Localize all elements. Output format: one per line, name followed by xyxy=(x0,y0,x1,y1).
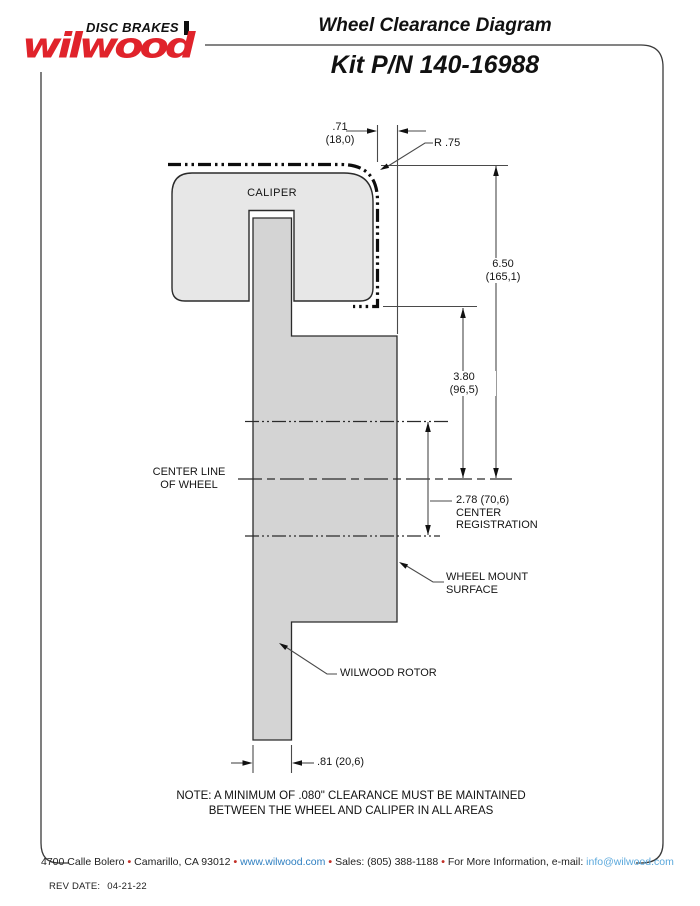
footer-address: 4700 Calle Bolero xyxy=(41,856,124,868)
dim-rotor-offset: .81 (20,6) xyxy=(317,756,364,769)
clearance-note: NOTE: A MINIMUM OF .080" CLEARANCE MUST … xyxy=(99,789,603,819)
caliper-label: CALIPER xyxy=(243,187,301,200)
clearance-note-line2: BETWEEN THE WHEEL AND CALIPER IN ALL ARE… xyxy=(209,805,494,817)
dim-overall-height-in: 6.50 xyxy=(492,258,513,270)
wilwood-logo: DISC BRAKES wilwood xyxy=(20,20,210,74)
wilwood-logo-script: wilwood xyxy=(22,29,191,63)
dim-mount-to-envelope-in: 3.80 xyxy=(453,371,474,383)
footer-separator: • xyxy=(230,856,240,868)
centerline-label-line1: CENTER LINE xyxy=(153,466,226,478)
footer-more-info: For More Information, e-mail: xyxy=(448,856,583,868)
dim-overall-height-mm: (165,1) xyxy=(486,271,521,283)
wheel-mount-label-line1: WHEEL MOUNT xyxy=(446,571,528,583)
wheel-mount-label-line2: SURFACE xyxy=(446,584,498,596)
dim-center-registration: 2.78 (70,6)CENTERREGISTRATION xyxy=(456,494,538,532)
dim-caliper-offset: .71(18,0) xyxy=(314,121,366,146)
footer-sales-phone: Sales: (805) 388-1188 xyxy=(335,856,438,868)
revision-date: REV DATE:04-21-22 xyxy=(49,881,154,892)
footer-city: Camarillo, CA 93012 xyxy=(134,856,230,868)
centerline-label-line2: OF WHEEL xyxy=(160,479,217,491)
clearance-note-line1: NOTE: A MINIMUM OF .080" CLEARANCE MUST … xyxy=(176,790,525,802)
footer-separator: • xyxy=(325,856,335,868)
rotor-label: WILWOOD ROTOR xyxy=(340,667,437,680)
footer-separator: • xyxy=(124,856,134,868)
page-title: Wheel Clearance Diagram xyxy=(270,15,600,37)
dim-mount-to-envelope-mm: (96,5) xyxy=(450,384,479,396)
dim-caliper-offset-mm: (18,0) xyxy=(326,134,355,146)
revision-date-value: 04-21-22 xyxy=(107,881,147,892)
kit-part-number: Kit P/N 140-16988 xyxy=(270,51,600,80)
centerline-label: CENTER LINEOF WHEEL xyxy=(142,466,236,491)
dim-corner-radius: R .75 xyxy=(434,137,460,150)
dim-center-registration-line2: CENTER xyxy=(456,507,501,519)
dim-overall-height: 6.50(165,1) xyxy=(470,258,536,283)
dim-center-registration-line3: REGISTRATION xyxy=(456,519,538,531)
sheet-border-left xyxy=(41,72,69,863)
footer-email-link[interactable]: info@wilwood.com xyxy=(586,856,674,868)
footer-website-link[interactable]: www.wilwood.com xyxy=(240,856,325,868)
dim-mount-to-envelope: 3.80(96,5) xyxy=(432,371,496,396)
wheel-mount-label: WHEEL MOUNTSURFACE xyxy=(446,571,528,596)
wheel-clearance-sheet: DISC BRAKES wilwood Wheel Clearance Diag… xyxy=(0,0,700,906)
footer-separator: • xyxy=(438,856,448,868)
dim-caliper-offset-in: .71 xyxy=(332,121,347,133)
revision-date-label: REV DATE: xyxy=(49,881,100,892)
footer-contact-bar: 4700 Calle Bolero•Camarillo, CA 93012•ww… xyxy=(41,856,663,869)
dim-center-registration-value: 2.78 (70,6) xyxy=(456,494,509,506)
